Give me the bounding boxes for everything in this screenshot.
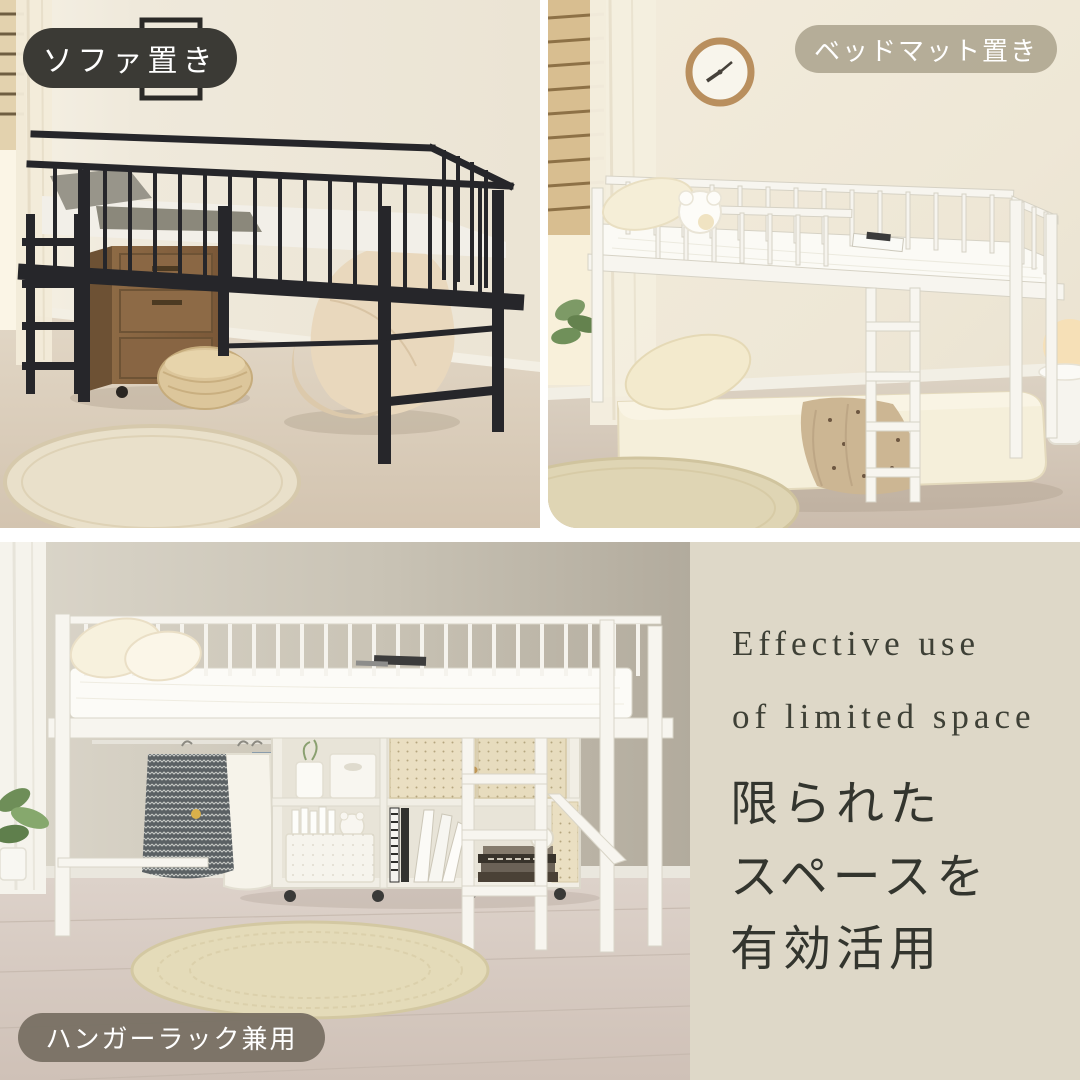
- badge-hanger-rack: ハンガーラック兼用: [18, 1013, 325, 1062]
- platform-beam: [48, 718, 673, 738]
- scene-white-loft-bed-futon: [548, 0, 1080, 528]
- japanese-tagline-line2: スペースを: [730, 837, 989, 907]
- badge-bed-mat-placement: ベッドマット置き: [795, 25, 1057, 73]
- shelf-unit: [272, 728, 580, 902]
- english-tagline-line2: of limited space: [732, 697, 1036, 737]
- head-post: [55, 614, 70, 936]
- product-image: Effective use of limited space 限られた スペース…: [0, 0, 1080, 1080]
- wall-clock: [689, 41, 751, 103]
- scene-hanger-rack-loft-bed: [0, 542, 690, 1080]
- woven-pouf: [158, 347, 252, 409]
- badge-sofa-placement: ソファ置き: [23, 28, 237, 88]
- japanese-tagline-line3: 有効活用: [730, 909, 942, 979]
- japanese-tagline-line1: 限られた: [730, 764, 942, 834]
- photo-white-loft-bed-futon: [548, 0, 1080, 528]
- text-panel: Effective use of limited space 限られた スペース…: [690, 542, 1080, 1080]
- round-rug: [5, 426, 299, 528]
- photo-hanger-rack-loft-bed: [0, 542, 690, 1080]
- english-tagline-line1: Effective use: [732, 624, 980, 664]
- round-rug: [132, 922, 488, 1018]
